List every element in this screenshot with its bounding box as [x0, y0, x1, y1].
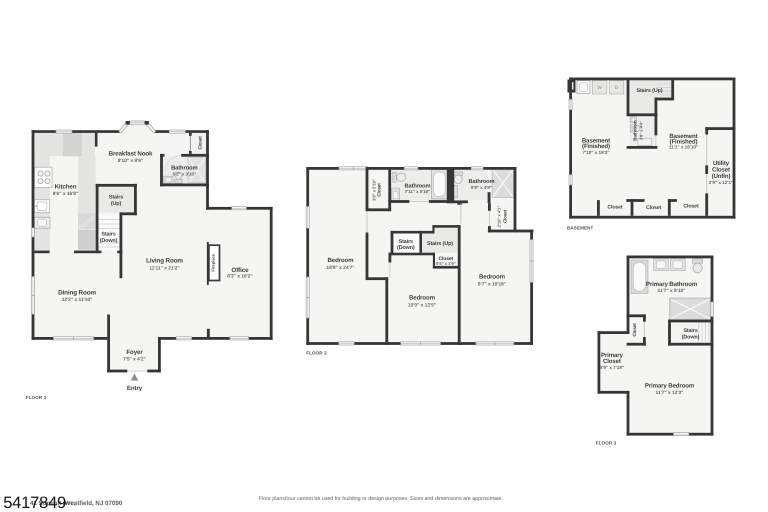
svg-text:Dining Room: Dining Room [58, 290, 96, 297]
svg-text:Entry: Entry [127, 385, 143, 392]
svg-text:FLOOR 2: FLOOR 2 [306, 351, 327, 356]
svg-text:5'4" x 1'9": 5'4" x 1'9" [436, 261, 456, 266]
svg-text:Fireplace: Fireplace [211, 253, 216, 271]
svg-text:Office: Office [231, 267, 249, 274]
svg-text:Foyer: Foyer [126, 349, 143, 356]
svg-text:8'3" x 16'2": 8'3" x 16'2" [227, 273, 253, 279]
svg-text:FLOOR 3: FLOOR 3 [596, 440, 617, 445]
svg-text:Closet: Closet [683, 204, 699, 210]
svg-text:Westfield, NJ 07090: Westfield, NJ 07090 [65, 500, 123, 507]
svg-text:Kitchen: Kitchen [55, 184, 77, 191]
svg-text:2'9" x 12'1": 2'9" x 12'1" [709, 180, 733, 185]
svg-text:FLOOR 1: FLOOR 1 [26, 395, 47, 400]
svg-text:Closet: Closet [376, 183, 381, 197]
svg-text:11'11" x 21'2": 11'11" x 21'2" [149, 265, 179, 271]
svg-text:6'2" x 3'10": 6'2" x 3'10" [173, 172, 196, 177]
svg-text:BASEMENT: BASEMENT [567, 226, 594, 231]
svg-text:7'10" x 19'3": 7'10" x 19'3" [583, 150, 610, 155]
svg-text:Stairs: Stairs [101, 232, 115, 238]
svg-text:3'8" x 4'4": 3'8" x 4'4" [639, 121, 644, 140]
svg-text:Closet: Closet [632, 323, 637, 337]
svg-text:D: D [615, 85, 619, 91]
svg-text:Bedroom: Bedroom [328, 257, 355, 264]
svg-text:11'7" x 8'10": 11'7" x 8'10" [658, 288, 686, 294]
svg-text:Living Room: Living Room [146, 258, 183, 265]
svg-text:7'11" x 5'10": 7'11" x 5'10" [405, 189, 431, 194]
svg-text:2'10" x 4'1": 2'10" x 4'1" [496, 206, 501, 228]
svg-text:3'8" x 5'10": 3'8" x 5'10" [372, 179, 377, 201]
svg-text:Closet: Closet [607, 205, 623, 211]
svg-text:Stairs (Up): Stairs (Up) [427, 241, 453, 247]
svg-text:Bathroom: Bathroom [633, 120, 638, 140]
svg-text:9'7" x 10'18": 9'7" x 10'18" [478, 281, 506, 287]
svg-text:Bedroom: Bedroom [479, 274, 506, 281]
svg-text:5417849: 5417849 [3, 494, 66, 512]
svg-text:Breakfast Nook: Breakfast Nook [109, 151, 153, 158]
svg-text:Bedroom: Bedroom [409, 295, 436, 302]
svg-text:Stairs: Stairs [109, 195, 123, 201]
svg-text:W: W [597, 85, 602, 91]
svg-text:8'10" x 8'6": 8'10" x 8'6" [118, 158, 144, 164]
svg-text:Primary Bedroom: Primary Bedroom [645, 383, 695, 390]
svg-text:10'0" x 12'5": 10'0" x 12'5" [408, 302, 436, 308]
svg-text:11'7" x 12'3": 11'7" x 12'3" [656, 390, 684, 396]
svg-text:(Down): (Down) [682, 334, 700, 340]
svg-text:Bathroom: Bathroom [171, 165, 197, 172]
svg-text:Stairs: Stairs [683, 328, 697, 334]
svg-text:Primary Bathroom: Primary Bathroom [646, 281, 698, 288]
svg-text:Closet: Closet [198, 136, 203, 150]
svg-text:18'8" x 24'7": 18'8" x 24'7" [326, 265, 354, 271]
svg-text:12'2" x 11'10": 12'2" x 11'10" [62, 297, 93, 303]
svg-text:(Down): (Down) [397, 245, 415, 251]
svg-text:Stairs: Stairs [399, 239, 413, 245]
svg-text:Stairs (Up): Stairs (Up) [637, 88, 663, 94]
svg-text:Closet: Closet [646, 205, 662, 211]
svg-text:Floor plans/tour cannot be use: Floor plans/tour cannot be used for buil… [259, 496, 503, 502]
svg-text:8'6" x 16'8": 8'6" x 16'8" [53, 191, 79, 197]
svg-text:(Down): (Down) [100, 238, 118, 244]
svg-text:(Up): (Up) [111, 201, 122, 207]
svg-text:11'1" x 16'10": 11'1" x 16'10" [669, 145, 698, 150]
svg-text:4'9" x 7'18": 4'9" x 7'18" [600, 365, 624, 370]
svg-text:8'9" x 4'9": 8'9" x 4'9" [471, 185, 492, 190]
svg-text:7'5" x 4'2": 7'5" x 4'2" [123, 357, 146, 363]
svg-text:Closet: Closet [503, 209, 508, 223]
